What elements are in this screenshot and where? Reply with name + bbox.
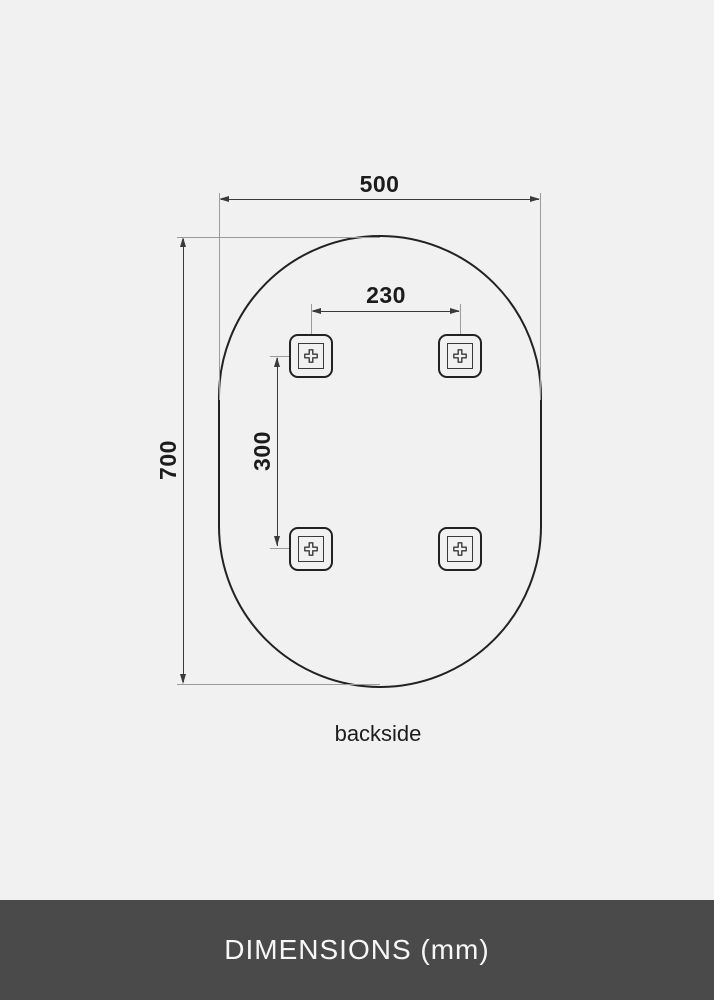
bracket-plate	[447, 343, 473, 369]
screw-cross-icon	[303, 348, 319, 364]
width-dim-line	[221, 199, 539, 200]
width-dim-arrow-right	[530, 196, 540, 202]
bracket-plate	[298, 343, 324, 369]
mounting-bracket-top-right	[438, 334, 482, 378]
height-dim-arrow-top	[180, 237, 186, 247]
hole-spacing-y-arrow-top	[274, 357, 280, 367]
height-dim-label: 700	[156, 430, 180, 490]
height-dim-arrow-bottom	[180, 674, 186, 684]
dimension-diagram: 500 700 230 300	[0, 0, 714, 1000]
width-dim-arrow-left	[219, 196, 229, 202]
hole-spacing-y-line	[277, 358, 278, 546]
hole-spacing-x-ext-left	[311, 304, 312, 335]
hole-spacing-x-line	[313, 311, 459, 312]
mounting-bracket-bottom-left	[289, 527, 333, 571]
hole-spacing-y-ext-bottom	[270, 548, 290, 549]
hole-spacing-x-arrow-right	[450, 308, 460, 314]
hole-spacing-x-ext-right	[460, 304, 461, 335]
height-dim-line	[183, 239, 184, 682]
height-ext-line-top	[177, 237, 380, 238]
screw-cross-icon	[452, 541, 468, 557]
screw-cross-icon	[303, 541, 319, 557]
width-ext-line-right	[540, 193, 541, 400]
hole-spacing-x-label: 230	[311, 283, 461, 307]
width-ext-line-left	[219, 193, 220, 400]
mounting-bracket-bottom-right	[438, 527, 482, 571]
hole-spacing-y-label: 300	[250, 421, 274, 481]
footer-title: DIMENSIONS (mm)	[224, 934, 489, 966]
backside-caption: backside	[278, 721, 478, 747]
bracket-plate	[447, 536, 473, 562]
screw-cross-icon	[452, 348, 468, 364]
width-dim-label: 500	[219, 172, 540, 196]
hole-spacing-y-ext-top	[270, 356, 290, 357]
footer-bar: DIMENSIONS (mm)	[0, 900, 714, 1000]
hole-spacing-x-arrow-left	[311, 308, 321, 314]
hole-spacing-y-arrow-bottom	[274, 536, 280, 546]
bracket-plate	[298, 536, 324, 562]
height-ext-line-bottom	[177, 684, 380, 685]
mounting-bracket-top-left	[289, 334, 333, 378]
